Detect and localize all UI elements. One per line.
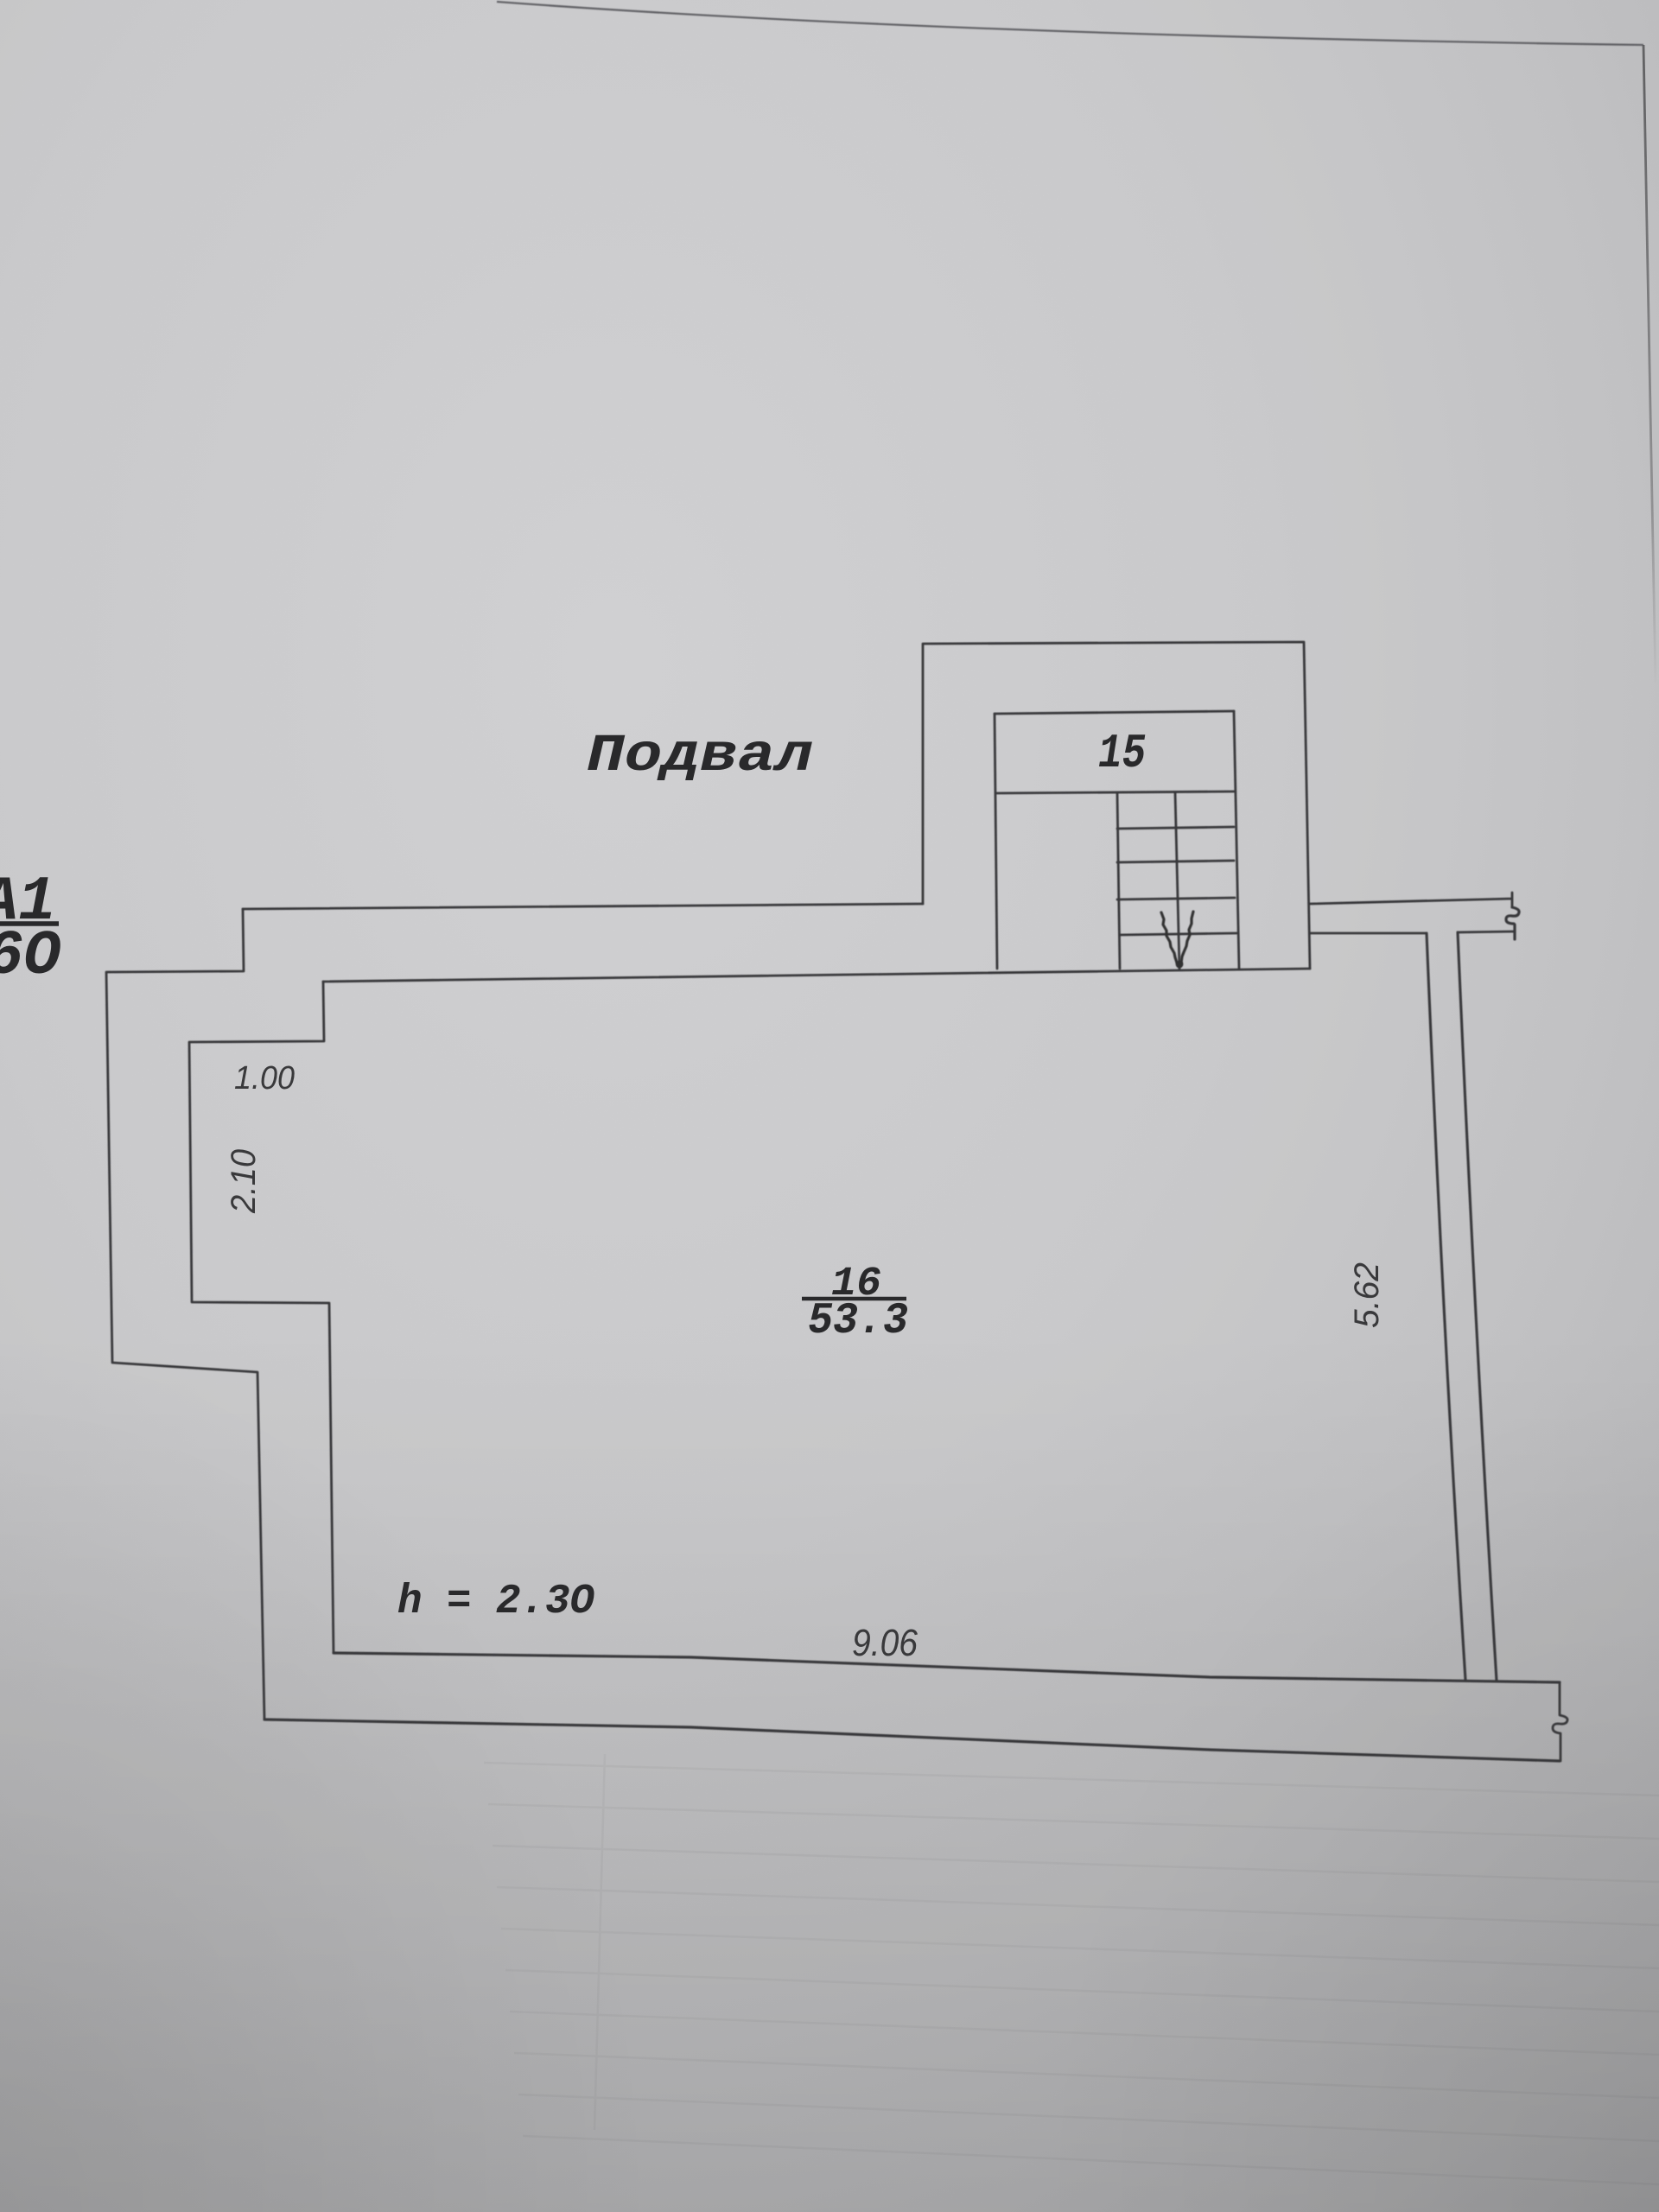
svg-text:1.00: 1.00 xyxy=(234,1060,295,1096)
svg-text:6О: 6О xyxy=(0,921,60,992)
svg-text:9.06: 9.06 xyxy=(852,1622,918,1664)
svg-text:53.3: 53.3 xyxy=(808,1297,908,1346)
svg-text:h = 2.3О: h = 2.3О xyxy=(397,1579,594,1625)
svg-text:Подвал: Подвал xyxy=(587,727,813,786)
svg-text:2.10: 2.10 xyxy=(225,1149,263,1214)
svg-text:5.62: 5.62 xyxy=(1348,1262,1386,1328)
svg-text:15: 15 xyxy=(1098,726,1146,781)
